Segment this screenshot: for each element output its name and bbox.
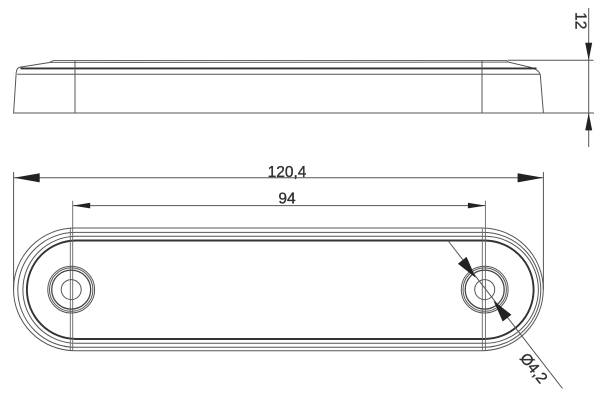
svg-text:120,4: 120,4 — [268, 164, 307, 181]
svg-text:94: 94 — [278, 191, 296, 208]
svg-text:12: 12 — [572, 12, 589, 29]
svg-text:Ø4,2: Ø4,2 — [516, 350, 550, 387]
